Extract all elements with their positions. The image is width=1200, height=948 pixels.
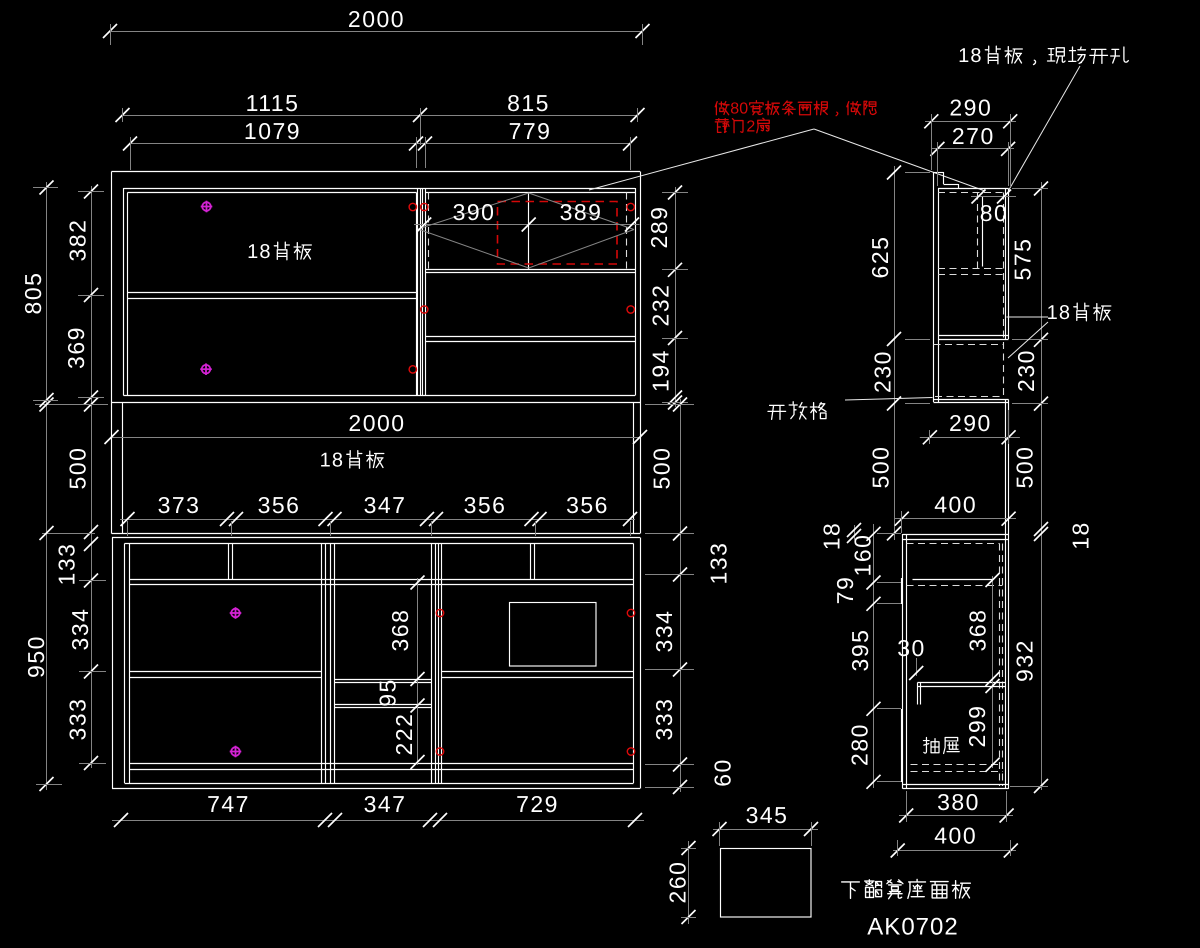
- svg-text:729: 729: [516, 791, 559, 817]
- svg-text:356: 356: [258, 492, 301, 518]
- svg-text:815: 815: [507, 90, 550, 116]
- svg-text:18: 18: [958, 45, 983, 67]
- svg-text:80: 80: [980, 200, 1009, 226]
- svg-text:18: 18: [819, 522, 845, 551]
- svg-text:500: 500: [1012, 446, 1038, 489]
- svg-text:369: 369: [63, 326, 89, 369]
- svg-text:260: 260: [665, 861, 691, 904]
- svg-text:AK0702: AK0702: [867, 914, 958, 941]
- svg-text:333: 333: [65, 698, 91, 741]
- svg-text:290: 290: [949, 410, 992, 436]
- svg-text:230: 230: [1013, 349, 1039, 392]
- svg-text:950: 950: [23, 635, 49, 678]
- svg-text:345: 345: [746, 802, 789, 828]
- svg-text:270: 270: [952, 123, 995, 149]
- svg-text:356: 356: [566, 492, 609, 518]
- svg-text:747: 747: [207, 791, 250, 817]
- svg-text:18: 18: [247, 241, 272, 263]
- svg-text:1115: 1115: [246, 90, 300, 116]
- svg-text:194: 194: [648, 349, 674, 392]
- svg-text:932: 932: [1012, 639, 1038, 682]
- svg-text:334: 334: [651, 610, 677, 653]
- svg-text:2000: 2000: [348, 6, 405, 32]
- svg-text:575: 575: [1010, 238, 1036, 281]
- svg-text:779: 779: [509, 118, 552, 144]
- svg-text:79: 79: [832, 576, 858, 605]
- svg-text:18: 18: [1047, 302, 1072, 324]
- svg-text:382: 382: [65, 219, 91, 262]
- svg-text:232: 232: [648, 284, 674, 327]
- svg-text:395: 395: [847, 629, 873, 672]
- svg-text:334: 334: [67, 608, 93, 651]
- svg-text:160: 160: [850, 534, 876, 577]
- svg-text:368: 368: [965, 609, 991, 652]
- svg-text:380: 380: [937, 789, 980, 815]
- svg-text:30: 30: [897, 635, 926, 661]
- svg-text:805: 805: [20, 272, 46, 315]
- svg-text:373: 373: [158, 492, 201, 518]
- svg-text:280: 280: [847, 723, 873, 766]
- svg-text:500: 500: [65, 447, 91, 490]
- svg-text:389: 389: [560, 199, 603, 225]
- svg-text:500: 500: [649, 447, 675, 490]
- svg-text:18: 18: [320, 450, 345, 472]
- svg-text:625: 625: [867, 236, 893, 279]
- svg-text:368: 368: [387, 609, 413, 652]
- svg-text:1079: 1079: [244, 118, 301, 144]
- svg-text:60: 60: [710, 758, 736, 787]
- svg-text:347: 347: [364, 492, 407, 518]
- svg-text:133: 133: [706, 542, 732, 585]
- svg-text:289: 289: [646, 206, 672, 249]
- svg-text:290: 290: [949, 95, 992, 121]
- svg-text:133: 133: [54, 543, 80, 586]
- svg-text:230: 230: [870, 350, 896, 393]
- svg-text:18: 18: [1068, 521, 1094, 550]
- svg-text:400: 400: [934, 492, 977, 518]
- svg-text:356: 356: [464, 492, 507, 518]
- svg-text:347: 347: [364, 791, 407, 817]
- svg-text:299: 299: [964, 705, 990, 748]
- svg-text:2000: 2000: [348, 410, 405, 436]
- svg-text:222: 222: [391, 713, 417, 756]
- svg-text:500: 500: [868, 446, 894, 489]
- svg-text:80: 80: [730, 101, 748, 118]
- svg-text:400: 400: [934, 823, 977, 849]
- svg-text:2: 2: [746, 119, 755, 136]
- svg-text:95: 95: [375, 678, 401, 707]
- svg-text:390: 390: [453, 199, 496, 225]
- svg-text:333: 333: [651, 698, 677, 741]
